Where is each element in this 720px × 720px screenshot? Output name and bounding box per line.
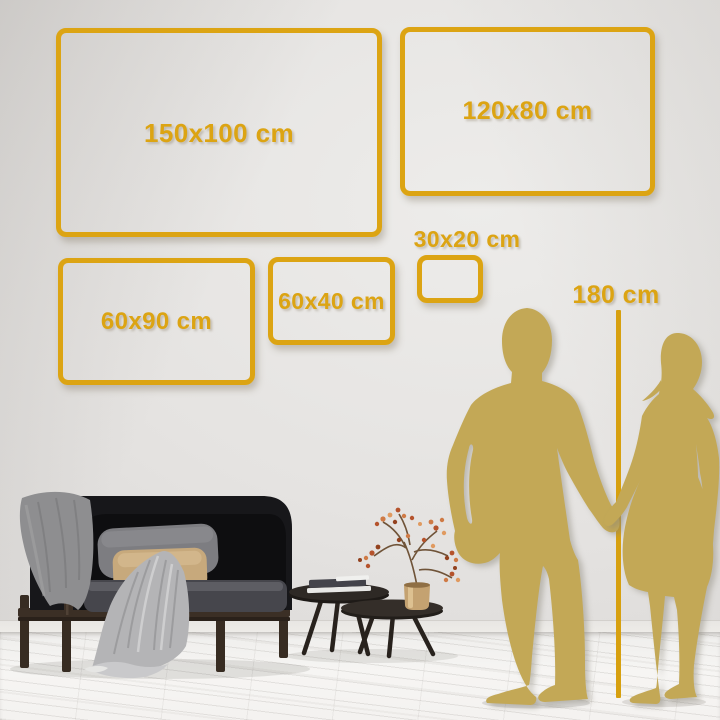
size-frame-60x90: 60x90 cm <box>58 258 255 385</box>
size-frame-150x100: 150x100 cm <box>56 28 382 237</box>
size-frame-120x80: 120x80 cm <box>400 27 655 196</box>
size-comparison-scene: 150x100 cm 120x80 cm 60x90 cm 60x40 cm 3… <box>0 0 720 720</box>
ruler-label-180cm: 180 cm <box>546 283 686 308</box>
size-frame-30x20 <box>417 255 483 303</box>
size-label-150x100: 150x100 cm <box>144 120 294 146</box>
size-label-60x90: 60x90 cm <box>101 310 212 334</box>
size-label-30x20: 30x20 cm <box>407 228 527 251</box>
wood-floor <box>0 632 720 720</box>
size-frame-60x40: 60x40 cm <box>268 257 395 345</box>
size-label-120x80: 120x80 cm <box>462 99 592 124</box>
size-label-60x40: 60x40 cm <box>278 290 385 313</box>
